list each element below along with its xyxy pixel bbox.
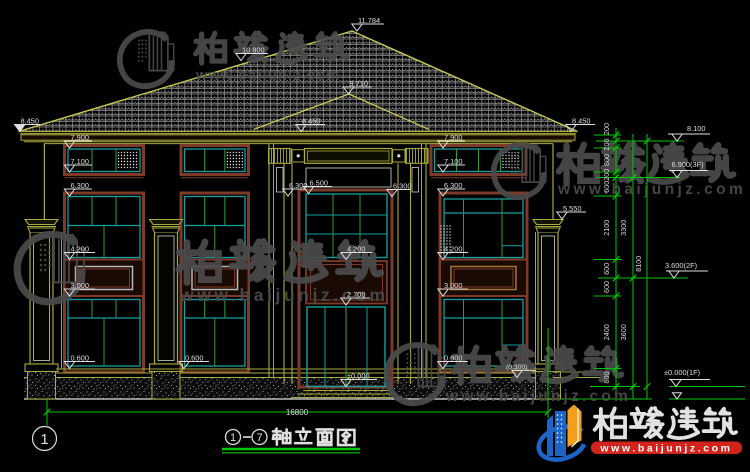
svg-text:7.100: 7.100 <box>444 157 463 166</box>
svg-text:1: 1 <box>230 432 236 444</box>
svg-text:4.200: 4.200 <box>444 244 463 253</box>
svg-text:±0.000: ±0.000 <box>347 371 370 380</box>
svg-text:4.200: 4.200 <box>71 244 90 253</box>
svg-text:www.baijunjz.com: www.baijunjz.com <box>599 442 732 454</box>
svg-text:3.600(2F): 3.600(2F) <box>665 261 697 270</box>
svg-text:6.900(3F): 6.900(3F) <box>672 160 704 169</box>
svg-text:7.900: 7.900 <box>444 133 463 142</box>
svg-text:7.100: 7.100 <box>71 157 90 166</box>
svg-text:0.600: 0.600 <box>71 353 90 362</box>
svg-text:2.700: 2.700 <box>347 290 366 299</box>
svg-text:16800: 16800 <box>286 408 309 417</box>
svg-text:11.784: 11.784 <box>358 16 380 25</box>
svg-text:www.baijunjz.com: www.baijunjz.com <box>557 181 746 198</box>
svg-text:2400: 2400 <box>602 324 611 340</box>
svg-text:600: 600 <box>602 263 611 275</box>
svg-text:8100: 8100 <box>634 256 643 272</box>
svg-text:8.450: 8.450 <box>302 116 321 125</box>
svg-text:3300: 3300 <box>619 220 628 236</box>
svg-text:6.300: 6.300 <box>444 181 463 190</box>
svg-text:600: 600 <box>602 372 611 384</box>
svg-text:(0.300): (0.300) <box>506 364 528 371</box>
svg-text:200: 200 <box>602 139 611 151</box>
svg-text:10.800: 10.800 <box>242 45 265 54</box>
svg-text:3.000: 3.000 <box>71 281 90 290</box>
svg-text:6.300: 6.300 <box>71 181 90 190</box>
svg-text:8.450: 8.450 <box>21 116 40 125</box>
svg-text:2100: 2100 <box>602 220 611 236</box>
svg-text:6.500: 6.500 <box>310 178 329 187</box>
svg-text:3600: 3600 <box>619 324 628 340</box>
svg-text:800: 800 <box>602 154 611 166</box>
svg-text:7: 7 <box>256 432 262 444</box>
svg-text:200: 200 <box>602 169 611 181</box>
svg-text:0.600: 0.600 <box>185 353 204 362</box>
svg-text:4.200: 4.200 <box>347 244 366 253</box>
svg-text:3.000: 3.000 <box>444 281 463 290</box>
svg-text:8.450: 8.450 <box>572 116 591 125</box>
svg-text:7.900: 7.900 <box>71 133 90 142</box>
svg-text:±0.000(1F): ±0.000(1F) <box>664 368 700 377</box>
svg-text:1: 1 <box>40 431 48 448</box>
svg-text:9.710: 9.710 <box>350 79 369 88</box>
svg-text:600: 600 <box>602 181 611 193</box>
svg-text:8.100: 8.100 <box>687 124 706 133</box>
svg-text:6.300: 6.300 <box>393 181 412 190</box>
svg-text:5.550: 5.550 <box>563 204 582 213</box>
svg-text:www.baijunjz.com: www.baijunjz.com <box>445 388 631 405</box>
svg-text:www.baijunjz.com: www.baijunjz.com <box>195 68 340 84</box>
svg-text:600: 600 <box>602 281 611 293</box>
svg-text:0.600: 0.600 <box>444 353 463 362</box>
svg-text:200: 200 <box>602 123 611 135</box>
